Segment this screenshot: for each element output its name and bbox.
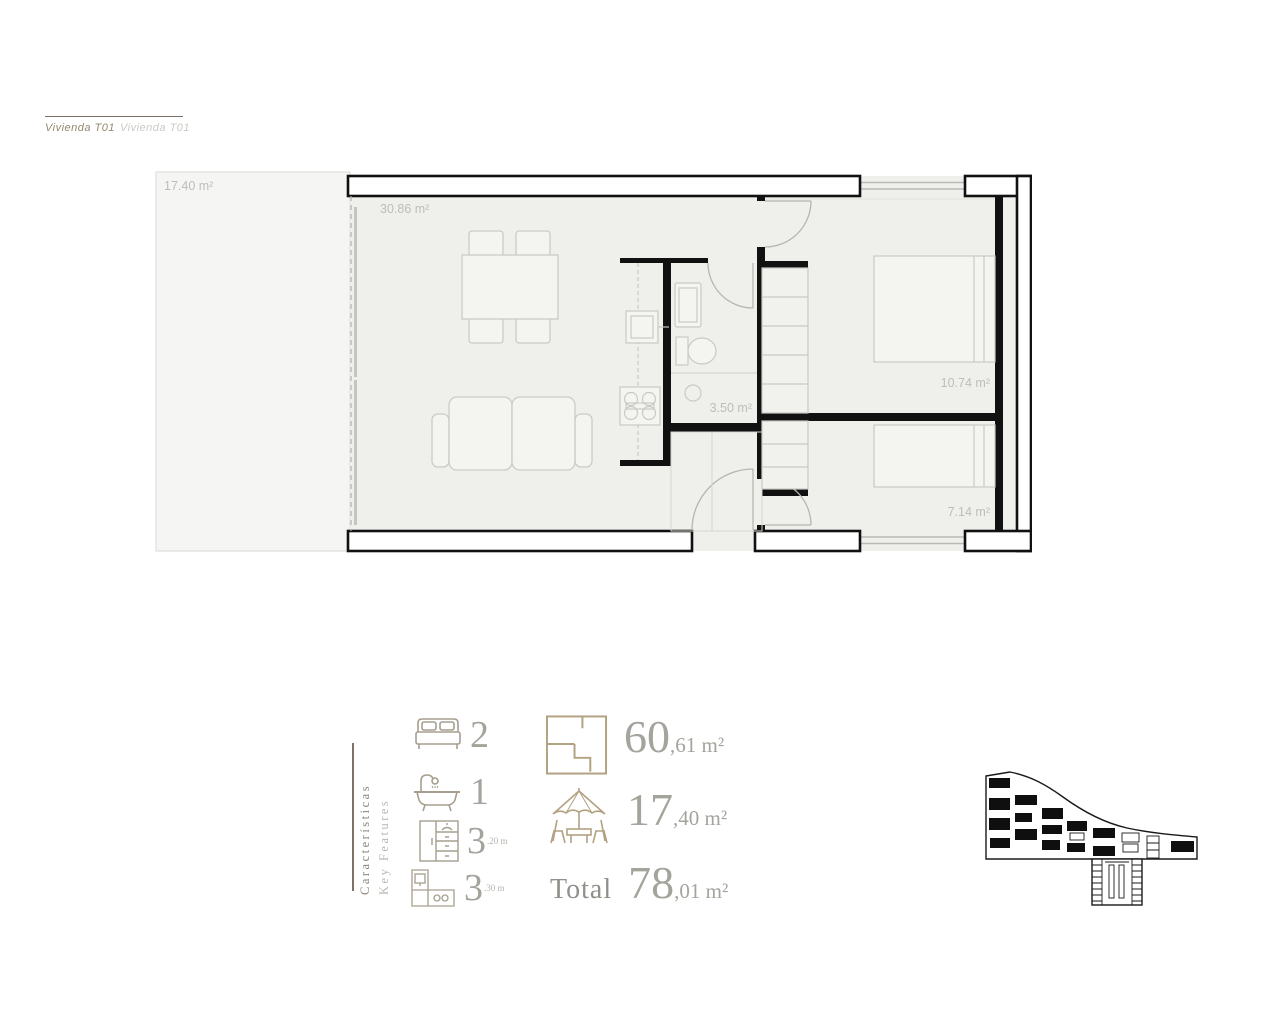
floorplan-icon (545, 714, 608, 776)
wardrobes-detail: .20 m (487, 836, 508, 846)
site-plan-drawing (985, 770, 1200, 915)
total-label: Total (550, 874, 612, 906)
bedroom1-area-label: 10.74 m² (941, 376, 990, 390)
toilet-bowl (688, 338, 716, 364)
bed-icon (414, 716, 462, 754)
wall-spine-stub-top (757, 196, 765, 201)
wall-bottom-long (348, 531, 692, 551)
wall-spine-stub-bottom (757, 525, 765, 531)
dining-chair (516, 231, 550, 256)
wardrobe2 (762, 421, 808, 489)
wall-right (1017, 176, 1031, 551)
wall-bedrooms-right (995, 196, 1003, 531)
terrace-floor (156, 172, 350, 551)
floor-plan: 17.40 m² 30.86 m² 3.50 m² 10.74 m² 7.14 … (152, 163, 1032, 558)
wall-bottom-right (965, 531, 1031, 551)
header-rule (45, 116, 183, 117)
floor-plan-drawing: 17.40 m² 30.86 m² 3.50 m² 10.74 m² 7.14 … (152, 163, 1032, 558)
total-area-value: 78,01 m² (628, 860, 728, 906)
sliding-panel-2 (354, 380, 357, 525)
page-title-secondary: Vivienda T01 (120, 122, 190, 134)
kitchen-detail: .30 m (484, 883, 505, 893)
total-area-whole: 78 (628, 857, 674, 908)
feature-kitchen: 3.30 m (410, 868, 505, 908)
feature-wardrobes: 3.20 m (419, 820, 508, 862)
features-heading-es: Características (358, 741, 373, 895)
wall-bathroom-bottom (671, 423, 762, 432)
built-area-fraction: ,61 m² (670, 733, 724, 757)
wardrobe1 (762, 268, 808, 413)
kitchen-icon (410, 868, 456, 908)
bed-single (874, 425, 995, 487)
site-plan (985, 770, 1200, 915)
dining-chair (469, 318, 503, 343)
sofa-armrest (575, 414, 592, 467)
dining-table (462, 255, 558, 319)
wall-bottom-short (755, 531, 860, 551)
terrace-area-value: 17,40 m² (627, 787, 727, 833)
terrace-area-label: 17.40 m² (164, 179, 213, 193)
area-total: Total 78,01 m² (550, 860, 728, 906)
building-core (1092, 859, 1142, 905)
terrace-area-fraction: ,40 m² (673, 806, 727, 830)
bed-double (874, 256, 995, 362)
kitchen-count: 3 (464, 869, 483, 907)
built-area-whole: 60 (624, 711, 670, 762)
sofa-armrest (432, 414, 449, 467)
wall-kitchen-right (663, 263, 671, 460)
wall-top (348, 176, 860, 196)
wardrobe1-cap (762, 261, 808, 268)
feature-bedrooms: 2 (414, 716, 489, 754)
sofa-cushion (512, 397, 575, 470)
bathroom-area-label: 3.50 m² (710, 401, 752, 415)
toilet-tank (676, 337, 688, 365)
page-title: Vivienda T01Vivienda T01 (45, 122, 190, 134)
dining-chair (469, 231, 503, 256)
features-heading-en: Key Features (377, 741, 392, 895)
built-area-value: 60,61 m² (624, 714, 724, 760)
bedroom2-area-label: 7.14 m² (948, 505, 990, 519)
area-terrace: 17,40 m² (547, 787, 727, 845)
wall-kitchen-bath-top (620, 258, 708, 263)
wardrobe2-cap (762, 489, 808, 496)
dining-chair (516, 318, 550, 343)
wardrobe-icon (419, 820, 459, 862)
bedrooms-count: 2 (470, 716, 489, 754)
terrace-area-whole: 17 (627, 784, 673, 835)
features-divider-line (352, 743, 354, 891)
wall-kitchen-cap (620, 460, 671, 466)
bathtub-icon (412, 770, 462, 814)
feature-bathrooms: 1 (412, 770, 489, 814)
sofa-cushion (449, 397, 512, 470)
total-area-fraction: ,01 m² (674, 879, 728, 903)
sliding-panel-1 (354, 207, 357, 377)
wardrobes-count: 3 (467, 822, 486, 860)
wall-bedroom-divider (757, 413, 1003, 421)
living-area-label: 30.86 m² (380, 202, 429, 216)
bathrooms-count: 1 (470, 773, 489, 811)
terrace-icon (547, 787, 611, 845)
page-title-primary: Vivienda T01 (45, 122, 115, 134)
area-built: 60,61 m² (545, 714, 724, 776)
